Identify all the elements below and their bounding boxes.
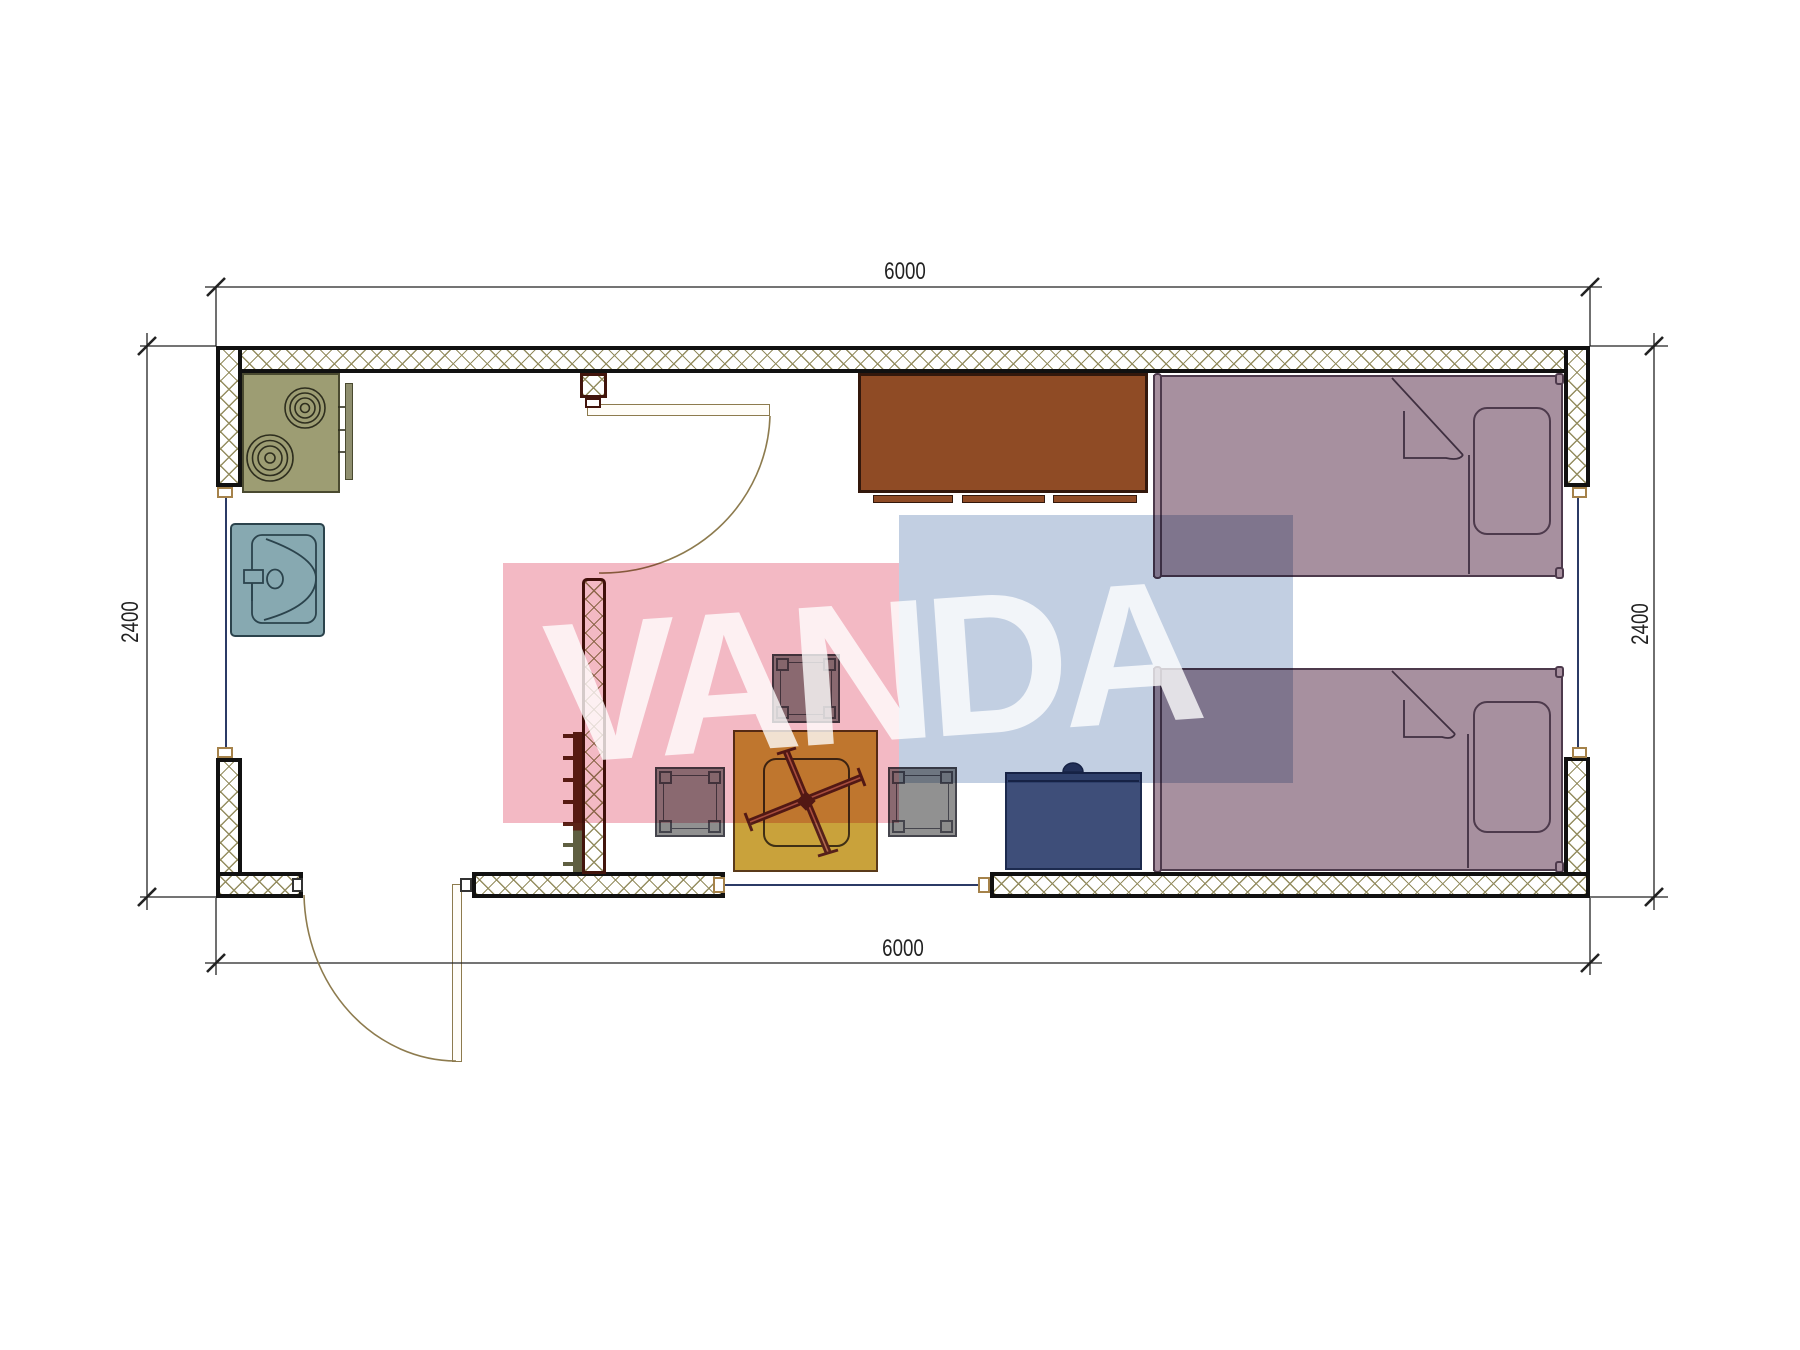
bed-bottom-corner-tab-1 <box>1555 666 1564 678</box>
right-window-cap-top <box>1572 487 1587 498</box>
interior-door-leaf <box>587 404 770 416</box>
interior-door-jamb-cap <box>585 398 601 408</box>
bottom-window-cap-left <box>713 877 725 893</box>
right-window-cap-bottom <box>1572 747 1587 758</box>
left-window-cap-bottom <box>217 747 233 758</box>
dimension-label-top: 6000 <box>858 260 952 284</box>
interior-door-arc <box>599 416 770 573</box>
wall-corner-left-foot <box>216 872 303 898</box>
desk <box>858 373 1148 493</box>
desk-foot-left <box>873 495 953 503</box>
entry-door-arc <box>304 895 456 1061</box>
wall-left-upper <box>216 346 242 487</box>
bed-top-corner-tab-1 <box>1555 373 1564 385</box>
desk-foot-middle <box>962 495 1045 503</box>
wall-top <box>216 346 1590 373</box>
entry-door-jamb-left <box>292 878 303 892</box>
left-window-cap-top <box>217 487 233 498</box>
entry-door-leaf <box>452 884 462 1062</box>
wall-right-upper <box>1564 346 1590 487</box>
wall-bottom-middle <box>472 872 725 898</box>
sink <box>230 523 325 637</box>
stool-post <box>940 820 953 833</box>
dimension-label-right: 2400 <box>1629 577 1653 671</box>
bed-top-pillow <box>1473 407 1551 535</box>
dimension-label-bottom: 6000 <box>856 937 950 961</box>
interior-door-head-jamb <box>580 373 607 398</box>
desk-foot-right <box>1053 495 1137 503</box>
entry-door-jamb-right <box>460 878 472 892</box>
watermark-text: VANDA <box>539 551 1203 796</box>
stove <box>242 373 340 493</box>
bed-top-corner-tab-2 <box>1555 567 1564 579</box>
floor-plan-canvas: VANDA 6000 6000 2400 2400 <box>0 0 1800 1350</box>
wall-bottom-right <box>990 872 1590 898</box>
stove-control-panel <box>345 383 353 480</box>
bed-bottom-pillow <box>1473 701 1551 833</box>
dimension-label-left: 2400 <box>119 575 143 669</box>
chest <box>1005 772 1142 870</box>
bottom-window-cap-right <box>978 877 990 893</box>
